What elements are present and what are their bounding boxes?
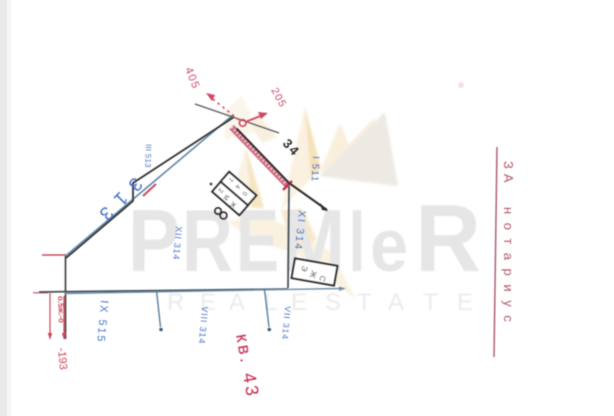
- svg-text:I: I: [349, 191, 365, 290]
- svg-text:I 511: I 511: [309, 156, 321, 183]
- svg-text:A: A: [388, 289, 404, 316]
- svg-text:A: A: [229, 289, 245, 316]
- svg-text:III 513: III 513: [143, 144, 153, 168]
- svg-text:R: R: [415, 185, 481, 292]
- svg-text:о.5ж.-о: о.5ж.-о: [56, 296, 66, 323]
- svg-text:P: P: [128, 191, 180, 290]
- svg-text:e: e: [370, 204, 408, 287]
- svg-text:S: S: [325, 289, 341, 316]
- svg-text:-193: -193: [55, 347, 69, 370]
- svg-text:R: R: [167, 289, 184, 316]
- svg-text:нотариус: нотариус: [501, 207, 516, 330]
- svg-text:ЗА: ЗА: [501, 161, 516, 188]
- svg-text:T: T: [357, 289, 372, 316]
- svg-text:R: R: [182, 191, 233, 290]
- svg-text:T: T: [423, 289, 438, 316]
- svg-text:E: E: [457, 289, 473, 316]
